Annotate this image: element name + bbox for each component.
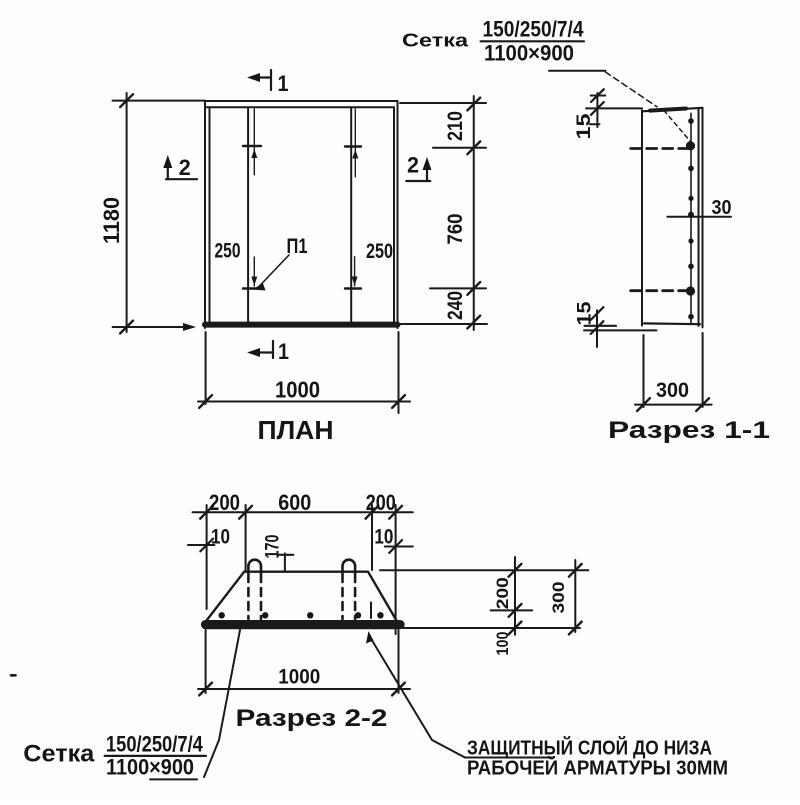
svg-text:300: 300 xyxy=(549,582,568,614)
svg-text:П1: П1 xyxy=(287,235,308,258)
svg-text:Сетка: Сетка xyxy=(23,741,95,768)
svg-text:Разрез 1-1: Разрез 1-1 xyxy=(608,417,770,444)
svg-text:15: 15 xyxy=(574,113,595,140)
svg-text:1000: 1000 xyxy=(278,666,320,689)
svg-text:10: 10 xyxy=(211,526,230,549)
svg-text:150/250/7/4: 150/250/7/4 xyxy=(483,17,585,42)
svg-text:2: 2 xyxy=(179,155,191,180)
svg-text:150/250/7/4: 150/250/7/4 xyxy=(106,732,204,757)
svg-text:250: 250 xyxy=(215,240,241,263)
svg-text:1000: 1000 xyxy=(275,377,320,403)
svg-text:600: 600 xyxy=(278,490,311,515)
svg-text:1: 1 xyxy=(278,339,289,364)
svg-text:200: 200 xyxy=(209,490,240,515)
svg-text:300: 300 xyxy=(656,379,689,402)
svg-text:ПЛАН: ПЛАН xyxy=(258,415,334,445)
svg-text:1: 1 xyxy=(278,71,289,96)
svg-text:10: 10 xyxy=(374,526,393,549)
svg-text:210: 210 xyxy=(444,111,467,141)
svg-text:15: 15 xyxy=(575,301,596,325)
svg-text:1180: 1180 xyxy=(99,197,124,244)
svg-text:РАБОЧЕЙ АРМАТУРЫ 30ММ: РАБОЧЕЙ АРМАТУРЫ 30ММ xyxy=(467,756,728,780)
svg-text:760: 760 xyxy=(444,214,467,245)
svg-text:250: 250 xyxy=(366,240,393,263)
svg-text:30: 30 xyxy=(712,197,732,219)
svg-text:200: 200 xyxy=(493,577,512,609)
svg-text:ЗАЩИТНЫЙ СЛОЙ ДО НИЗА: ЗАЩИТНЫЙ СЛОЙ ДО НИЗА xyxy=(467,736,712,760)
svg-text:100: 100 xyxy=(493,632,512,656)
svg-text:Разрез 2-2: Разрез 2-2 xyxy=(236,705,388,732)
svg-text:240: 240 xyxy=(444,291,467,320)
svg-text:Сетка: Сетка xyxy=(402,31,469,51)
svg-text:1100×900: 1100×900 xyxy=(106,755,194,780)
svg-text:200: 200 xyxy=(366,490,396,515)
svg-text:2: 2 xyxy=(407,153,419,178)
svg-text:170: 170 xyxy=(263,535,284,559)
svg-text:1100×900: 1100×900 xyxy=(484,41,574,66)
